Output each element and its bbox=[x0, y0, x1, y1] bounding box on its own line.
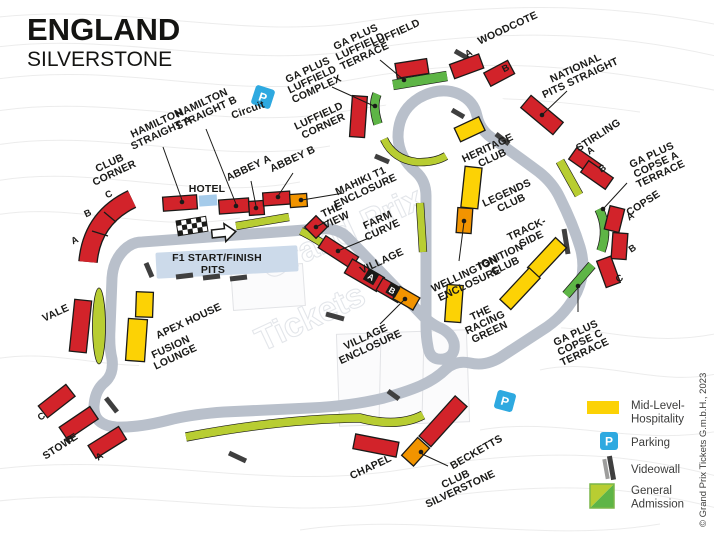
label-copse: COPSE bbox=[624, 188, 662, 219]
label-stowe: STOWE bbox=[41, 431, 81, 462]
hotel-building bbox=[199, 194, 218, 206]
label-chapel: CHAPEL bbox=[348, 452, 394, 482]
label-vale: VALE bbox=[40, 302, 70, 325]
page-title: ENGLAND bbox=[27, 12, 180, 47]
stand-mahiki-t1-enclosure[interactable] bbox=[290, 193, 308, 207]
stand-legends-club[interactable] bbox=[461, 166, 482, 209]
label-woodcote: WOODCOTE bbox=[476, 9, 540, 47]
stand-copse-a[interactable] bbox=[604, 206, 624, 233]
label-club-corner: CLUBCORNER bbox=[86, 148, 138, 189]
label-hamilton-straight-b: HAMILTONSTRAIGHT B bbox=[169, 84, 239, 133]
legend-parking-icon: P bbox=[600, 432, 618, 450]
ga-wellington-strip bbox=[420, 203, 423, 252]
legend-videowall-label: Videowall bbox=[631, 464, 680, 476]
legend-hospitality-label: Mid-Level-Hospitality bbox=[631, 400, 685, 426]
label-luffield-corner: LUFFIELDCORNER bbox=[292, 100, 349, 143]
legend: Mid-Level-Hospitality P Parking Videowal… bbox=[587, 400, 685, 511]
label-ga-luffield-terrace: GA PLUSLUFFIELDTERRACE bbox=[329, 21, 391, 73]
stand-copse-b[interactable] bbox=[611, 233, 628, 260]
legend-general-admission-label: GeneralAdmission bbox=[631, 485, 684, 511]
stand-fusion-lounge[interactable] bbox=[126, 318, 148, 361]
stand-vale[interactable] bbox=[69, 299, 91, 352]
label-hotel: HOTEL bbox=[189, 183, 226, 195]
label-stirling: STIRLING bbox=[574, 117, 623, 155]
svg-text:A: A bbox=[70, 234, 81, 247]
label-pits: PITS bbox=[201, 264, 225, 276]
ga-vale-strip bbox=[93, 288, 106, 364]
label-ga-luffield-complex: GA PLUSLUFFIELDCOMPLEX bbox=[281, 54, 343, 106]
legend-hospitality-swatch bbox=[587, 401, 619, 414]
label-f1-start-finish: F1 START/FINISH bbox=[172, 252, 262, 264]
legend-videowall-icon bbox=[602, 456, 616, 481]
label-abbey-a: ABBEY A bbox=[224, 153, 273, 184]
stand-stowe-c[interactable] bbox=[38, 384, 75, 417]
page-subtitle: SILVERSTONE bbox=[27, 48, 172, 71]
stand-apex-house[interactable] bbox=[136, 292, 154, 318]
svg-text:B: B bbox=[83, 207, 94, 220]
stand-stowe-b[interactable] bbox=[59, 407, 98, 440]
legend-general-admission-swatch bbox=[590, 484, 614, 508]
label-becketts: BECKETTS bbox=[448, 433, 504, 472]
svg-text:P: P bbox=[605, 435, 613, 449]
silverstone-circuit-map: Grand Prix Tickets bbox=[0, 0, 714, 534]
label-abbey-b: ABBEY B bbox=[268, 144, 317, 175]
svg-text:B: B bbox=[627, 242, 639, 255]
stand-woodcote-b[interactable] bbox=[484, 60, 515, 86]
ga-luffield-complex-strip bbox=[375, 94, 378, 124]
label-ga-copse-a: GA PLUSCOPSE ATERRACE bbox=[626, 139, 687, 191]
stand-copse-c[interactable] bbox=[597, 256, 621, 287]
copyright-text: © Grand Prix Tickets G.m.b.H., 2023 bbox=[698, 373, 709, 527]
legend-parking-label: Parking bbox=[631, 437, 670, 449]
